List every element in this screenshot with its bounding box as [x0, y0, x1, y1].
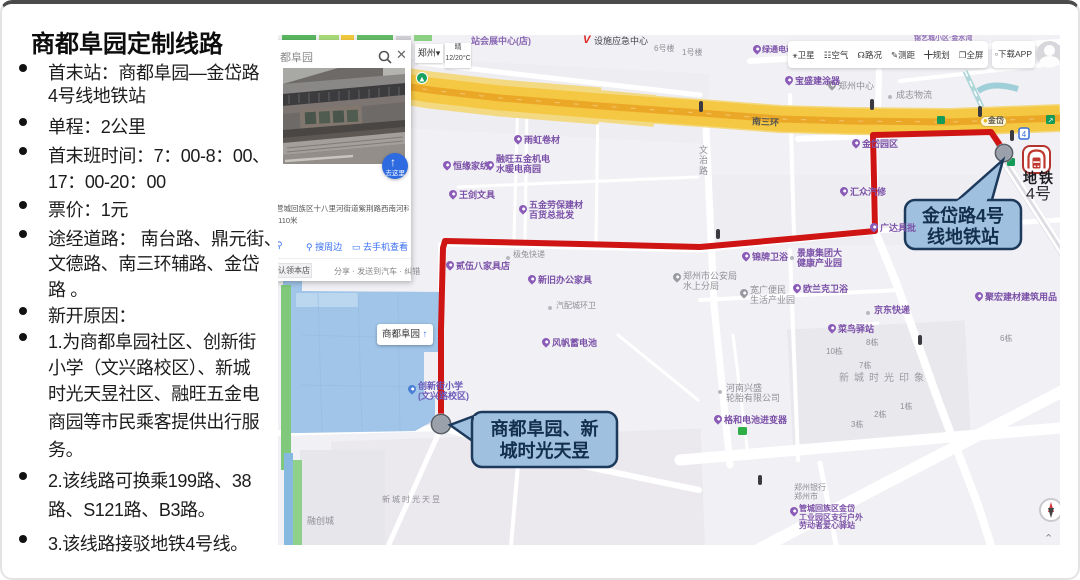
svg-text:↗: ↗	[1048, 118, 1054, 125]
svg-text:4: 4	[1022, 130, 1027, 139]
svg-text:▲: ▲	[418, 75, 426, 84]
